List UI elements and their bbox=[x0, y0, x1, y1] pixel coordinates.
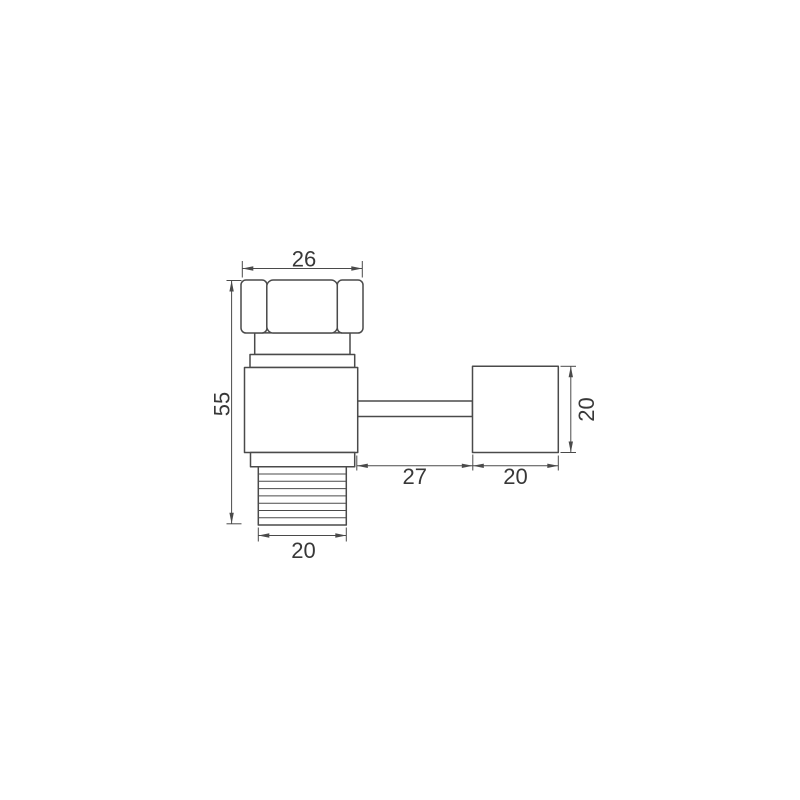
dimension-nut-width: 26 bbox=[242, 247, 362, 278]
lower-collar bbox=[251, 453, 355, 467]
dimension-stem-and-block: 27 20 bbox=[357, 455, 559, 490]
arrowhead-left-icon bbox=[473, 464, 484, 468]
arrowhead-left-icon bbox=[242, 266, 253, 270]
arrowhead-right-icon bbox=[335, 533, 346, 537]
valve-body bbox=[245, 368, 358, 453]
arrowhead-left-icon bbox=[357, 464, 368, 468]
valve-body-outline bbox=[245, 368, 358, 453]
lower-collar-outline bbox=[251, 453, 355, 467]
stem-pipe-outline bbox=[358, 401, 473, 417]
dim-label-thread-width: 20 bbox=[291, 538, 315, 563]
dimension-thread-width: 20 bbox=[258, 528, 346, 564]
upper-collar-outline bbox=[250, 355, 355, 368]
hex-nut-right-facet bbox=[337, 280, 363, 333]
arrowhead-left-icon bbox=[258, 533, 269, 537]
end-block-outline bbox=[473, 366, 559, 452]
hex-nut-center-facet bbox=[267, 280, 338, 333]
drawing-canvas: 26 55 20 bbox=[0, 0, 800, 800]
dim-label-block-width: 20 bbox=[503, 464, 527, 489]
arrowhead-down-icon bbox=[569, 442, 573, 453]
arrowhead-down-icon bbox=[229, 513, 233, 524]
neck-outline bbox=[255, 333, 350, 355]
dim-label-overall-height: 55 bbox=[210, 392, 235, 416]
dim-label-nut-width: 26 bbox=[292, 247, 316, 272]
arrowhead-right-icon bbox=[462, 464, 473, 468]
technical-drawing: 26 55 20 bbox=[0, 0, 800, 800]
stem-pipe bbox=[358, 401, 473, 417]
neck bbox=[255, 333, 350, 355]
dim-label-stem-length: 27 bbox=[403, 464, 427, 489]
arrowhead-right-icon bbox=[351, 266, 362, 270]
dim-label-block-height: 20 bbox=[574, 397, 599, 421]
end-block bbox=[473, 366, 559, 452]
hex-nut-left-facet bbox=[241, 280, 267, 333]
threaded-section bbox=[258, 467, 346, 525]
dimension-block-height: 20 bbox=[561, 366, 600, 452]
arrowhead-up-icon bbox=[569, 366, 573, 377]
arrowhead-right-icon bbox=[547, 464, 558, 468]
arrowhead-up-icon bbox=[229, 281, 233, 292]
hex-nut bbox=[241, 280, 363, 333]
dimension-overall-height: 55 bbox=[210, 281, 242, 524]
upper-collar bbox=[250, 355, 355, 368]
